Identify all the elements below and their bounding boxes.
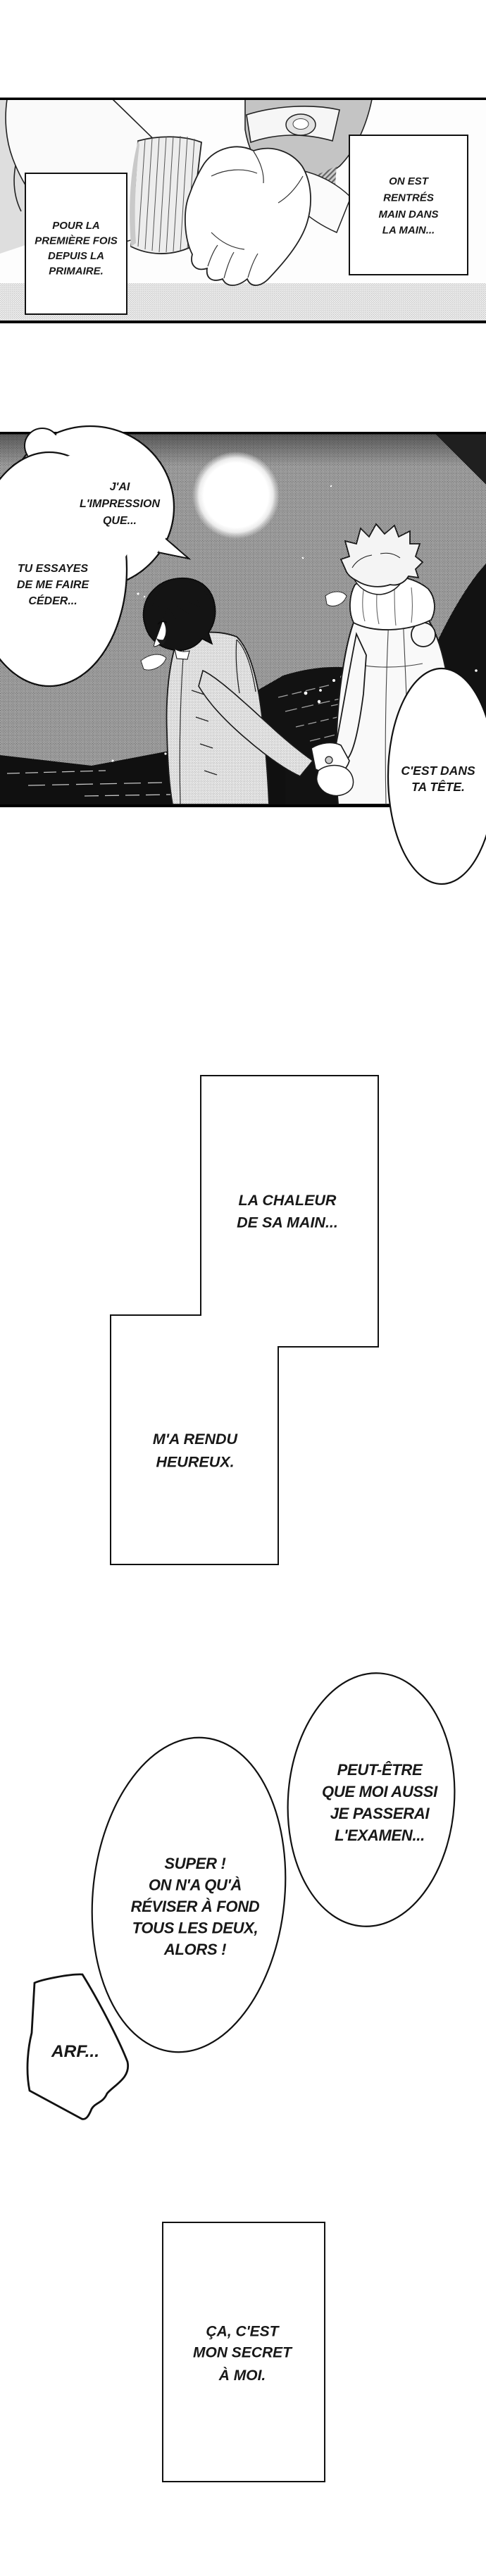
- svg-text:DEPUIS LA: DEPUIS LA: [48, 250, 104, 262]
- svg-text:PREMIÈRE FOIS: PREMIÈRE FOIS: [35, 235, 118, 247]
- svg-text:À MOI.: À MOI.: [218, 2367, 266, 2384]
- svg-text:ÇA, C'EST: ÇA, C'EST: [206, 2324, 280, 2340]
- svg-text:MON SECRET: MON SECRET: [193, 2345, 293, 2361]
- svg-text:TU ESSAYES: TU ESSAYES: [18, 563, 89, 575]
- svg-text:PEUT-ÊTRE: PEUT-ÊTRE: [337, 1761, 423, 1779]
- svg-text:L'IMPRESSION: L'IMPRESSION: [80, 498, 160, 510]
- svg-text:LA CHALEUR: LA CHALEUR: [239, 1192, 337, 1209]
- svg-text:RÉVISER À FOND: RÉVISER À FOND: [131, 1898, 260, 1915]
- svg-text:DE SA MAIN...: DE SA MAIN...: [237, 1214, 338, 1231]
- svg-text:TA TÊTE.: TA TÊTE.: [411, 779, 465, 794]
- svg-text:LA MAIN...: LA MAIN...: [382, 225, 435, 237]
- svg-text:ARF...: ARF...: [51, 2042, 99, 2061]
- svg-text:QUE...: QUE...: [103, 515, 137, 527]
- svg-text:HEUREUX.: HEUREUX.: [156, 1454, 234, 1471]
- svg-text:DE ME FAIRE: DE ME FAIRE: [17, 579, 90, 591]
- svg-text:ON N'A QU'À: ON N'A QU'À: [149, 1877, 242, 1894]
- svg-text:POUR LA: POUR LA: [52, 220, 100, 232]
- svg-text:SUPER !: SUPER !: [164, 1855, 225, 1872]
- svg-text:C'EST DANS: C'EST DANS: [401, 764, 475, 778]
- svg-text:JE PASSERAI: JE PASSERAI: [330, 1805, 430, 1822]
- svg-text:ON EST: ON EST: [389, 175, 430, 187]
- svg-text:J'AI: J'AI: [110, 481, 130, 493]
- svg-text:M'A RENDU: M'A RENDU: [153, 1431, 238, 1448]
- svg-text:CÉDER...: CÉDER...: [28, 594, 77, 607]
- svg-text:TOUS LES DEUX,: TOUS LES DEUX,: [132, 1919, 258, 1937]
- svg-text:MAIN DANS: MAIN DANS: [379, 209, 439, 220]
- svg-text:ALORS !: ALORS !: [163, 1941, 226, 1958]
- svg-text:RENTRÉS: RENTRÉS: [383, 192, 434, 204]
- svg-text:PRIMAIRE.: PRIMAIRE.: [49, 266, 104, 278]
- svg-text:QUE MOI AUSSI: QUE MOI AUSSI: [322, 1783, 438, 1800]
- svg-text:L'EXAMEN...: L'EXAMEN...: [335, 1827, 425, 1844]
